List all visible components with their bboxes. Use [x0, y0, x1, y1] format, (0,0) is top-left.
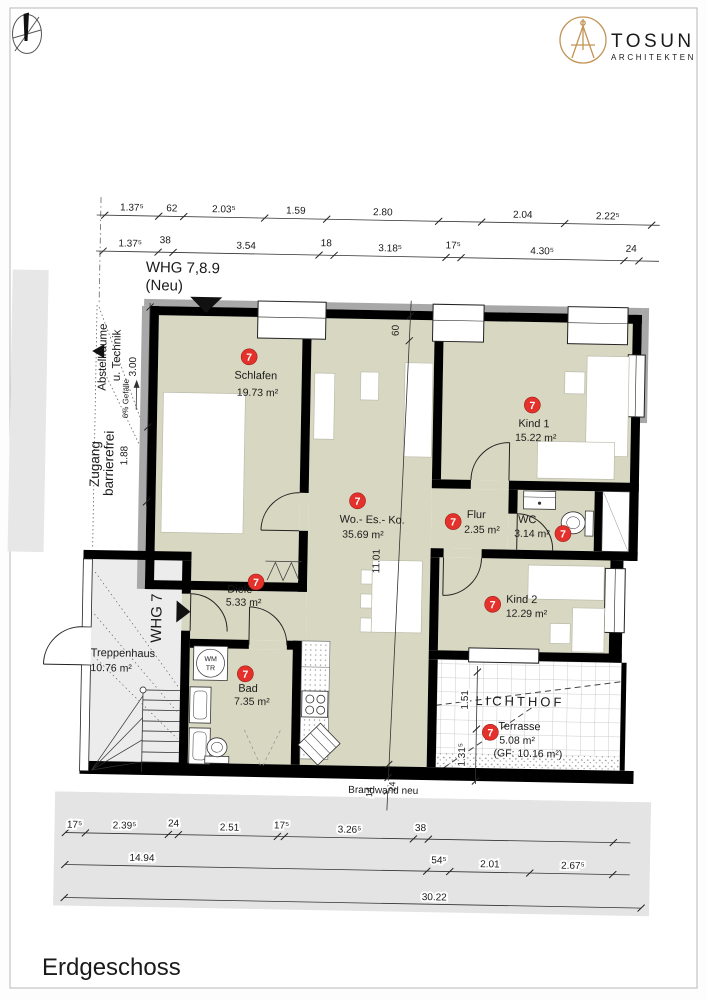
room-area-diele: 5.33 m²	[226, 596, 262, 609]
room-area-woesko: 35.69 m²	[342, 529, 384, 542]
dim-label: 1.59	[286, 205, 306, 216]
room-name-flur: Flur	[467, 509, 486, 521]
dim-label: 24	[626, 244, 638, 255]
svg-text:7: 7	[354, 496, 360, 508]
dim-label-total: 30.22	[422, 892, 448, 903]
room-area-terrasse: 5.08 m²	[499, 734, 535, 747]
floorplan-sheet: TOSUN ARCHITEKTEN	[0, 0, 707, 1000]
svg-text:7: 7	[246, 352, 252, 364]
floor-title: Erdgeschoss	[42, 954, 181, 981]
dim-label: 2.01	[480, 859, 500, 870]
room-name-treppenhaus: Treppenhaus	[91, 647, 156, 660]
room-name-wc: WC	[518, 514, 537, 526]
dim-label-151: 1.51	[460, 690, 471, 710]
zugang-label-2: barrierefrei	[101, 430, 117, 496]
room-area-treppenhaus: 10.76 m²	[90, 662, 132, 675]
neighbor-building	[8, 269, 49, 552]
svg-text:7: 7	[529, 400, 535, 412]
dim-label-300: 3.00	[128, 356, 139, 376]
dim-label-188: 1.88	[119, 445, 130, 465]
unit-marker: 7	[524, 397, 540, 413]
room-area-gf-terrasse: (GF: 10.16 m²)	[493, 747, 562, 760]
unit-marker: 7	[241, 349, 257, 365]
room-area-bad: 7.35 m²	[234, 696, 270, 709]
unit-marker: 7	[555, 525, 571, 541]
dim-label: 2.39⁵	[113, 820, 137, 831]
svg-text:7: 7	[490, 599, 496, 611]
unit-marker: 7	[248, 574, 264, 590]
dim-label: 17⁵	[445, 240, 460, 251]
svg-text:7: 7	[450, 517, 456, 529]
dim-label: 38	[415, 823, 427, 834]
svg-text:7: 7	[242, 669, 248, 681]
dim-label: 4.30⁵	[530, 246, 554, 257]
dim-label: 17⁵	[67, 820, 82, 831]
dim-label: 1.37⁵	[118, 238, 142, 249]
desk-kind1	[537, 441, 615, 479]
unit-marker: 7	[485, 596, 501, 612]
unit-marker: 7	[349, 493, 365, 509]
whg-789-label-2: (Neu)	[145, 277, 183, 295]
room-name-kind2: Kind 2	[506, 594, 537, 607]
tr-label: TR	[206, 665, 215, 672]
desk-kind2	[572, 608, 605, 653]
abstellraeume-label-2: u. Technik	[111, 329, 124, 381]
dim-label: 18	[321, 238, 333, 249]
whg-789-label: WHG 7,8.9	[146, 259, 220, 277]
room-area-flur: 2.35 m²	[464, 524, 500, 537]
svg-text:7: 7	[487, 727, 493, 739]
dim-label-1101: 11.01	[371, 549, 382, 574]
room-area-kind1: 15.22 m²	[515, 432, 557, 445]
unit-marker: 7	[237, 666, 253, 682]
dim-label: 2.04	[513, 210, 533, 221]
dim-label: 38	[160, 235, 172, 246]
room-name-woesko: Wo.- Es.- Ko.	[339, 514, 404, 527]
dim-label: 2.80	[373, 207, 393, 218]
floorplan-drawing: TOSUN ARCHITEKTEN	[0, 0, 707, 1000]
shaft	[602, 491, 630, 551]
room-area-wc: 3.14 m²	[514, 528, 550, 541]
dim-label-1315: 1.31⁵	[457, 743, 468, 767]
logo-brand-text: TOSUN	[611, 31, 695, 52]
dim-label: 3.54	[236, 241, 256, 252]
dim-label-60: 60	[391, 324, 402, 336]
dim-label: 3.18⁵	[378, 243, 402, 254]
unit-marker: 7	[445, 513, 461, 529]
bed-kind2	[528, 565, 605, 600]
room-area-schlafen: 19.73 m²	[237, 387, 279, 400]
dim-label: 24	[168, 818, 180, 829]
room-name-schlafen: Schlafen	[234, 370, 277, 383]
dim-label: 17⁵	[274, 820, 289, 831]
dim-label: 3.26⁵	[338, 825, 362, 836]
dim-label: 54⁵	[431, 855, 446, 866]
dim-label: 2.22⁵	[596, 211, 620, 222]
lichthof-label: LICHTHOF	[475, 693, 564, 710]
logo-tagline-text: ARCHITEKTEN	[611, 53, 696, 62]
washer-dryer-icon: WM TR	[193, 646, 228, 681]
room-name-terrasse: Terrasse	[498, 720, 540, 733]
wm-label: WM	[204, 656, 217, 663]
dim-label: 1.37⁵	[120, 202, 144, 213]
stove-icon	[302, 691, 328, 717]
dim-label: 2.03⁵	[212, 204, 236, 215]
svg-text:7: 7	[253, 577, 259, 589]
room-area-kind2: 12.29 m²	[506, 608, 548, 621]
gefaelle-label: 6% Gefälle	[121, 378, 131, 418]
dim-label: 62	[166, 203, 178, 214]
whg7-label: WHG 7	[148, 593, 166, 642]
bed-kind1	[585, 356, 629, 457]
unit-marker: 7	[482, 724, 498, 740]
brandwand-label: Brandwand neu	[348, 785, 418, 797]
room-name-bad: Bad	[238, 683, 258, 695]
dim-label: 2.51	[220, 822, 240, 833]
bed-schlafen	[161, 392, 246, 533]
svg-text:7: 7	[560, 529, 566, 541]
room-name-kind1: Kind 1	[518, 418, 549, 431]
dim-label: 14.94	[129, 853, 155, 864]
dim-label: 2.67⁵	[561, 861, 585, 872]
